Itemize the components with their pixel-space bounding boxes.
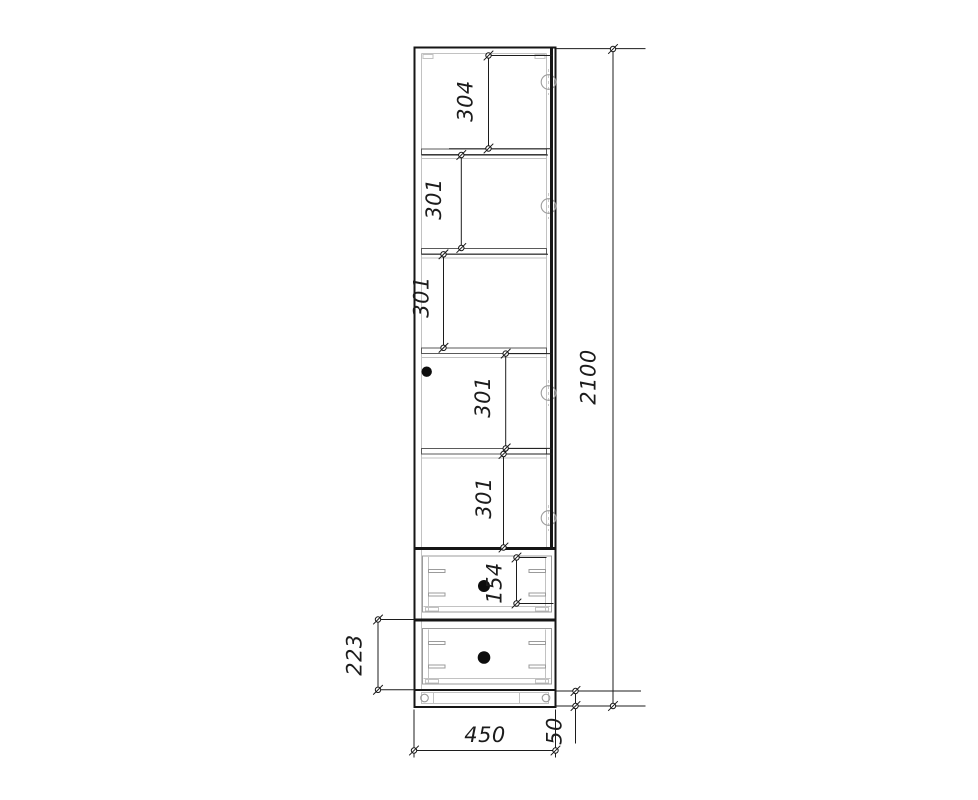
- dim-label-overall-height: 2100: [577, 349, 601, 404]
- dim-label-overall-width: 450: [464, 723, 506, 747]
- dimension-plinth-height: 50: [543, 686, 642, 745]
- dim-label-section-1: 304: [454, 80, 478, 122]
- dimension-overall-width: 450: [409, 710, 560, 758]
- drawing-canvas: 304 301 301 301 301: [0, 0, 978, 800]
- dim-label-plinth-height: 50: [543, 717, 567, 745]
- dim-label-section-2: 301: [422, 178, 446, 220]
- cabinet-front-elevation: 304 301 301 301 301: [0, 0, 978, 800]
- shelf-2: [422, 249, 547, 255]
- dim-label-section-3: 301: [410, 276, 434, 318]
- dim-label-section-4: 301: [471, 376, 495, 418]
- dim-label-drawer-2: 223: [343, 634, 367, 676]
- shelf-1: [422, 149, 547, 155]
- shelf-4: [422, 449, 547, 455]
- dimension-overall-height: 2100: [556, 44, 646, 711]
- drawer2-knob: [478, 651, 491, 664]
- dim-label-section-5: 301: [472, 477, 496, 519]
- dim-label-drawer-1: 154: [483, 562, 507, 604]
- door-knob: [422, 367, 432, 377]
